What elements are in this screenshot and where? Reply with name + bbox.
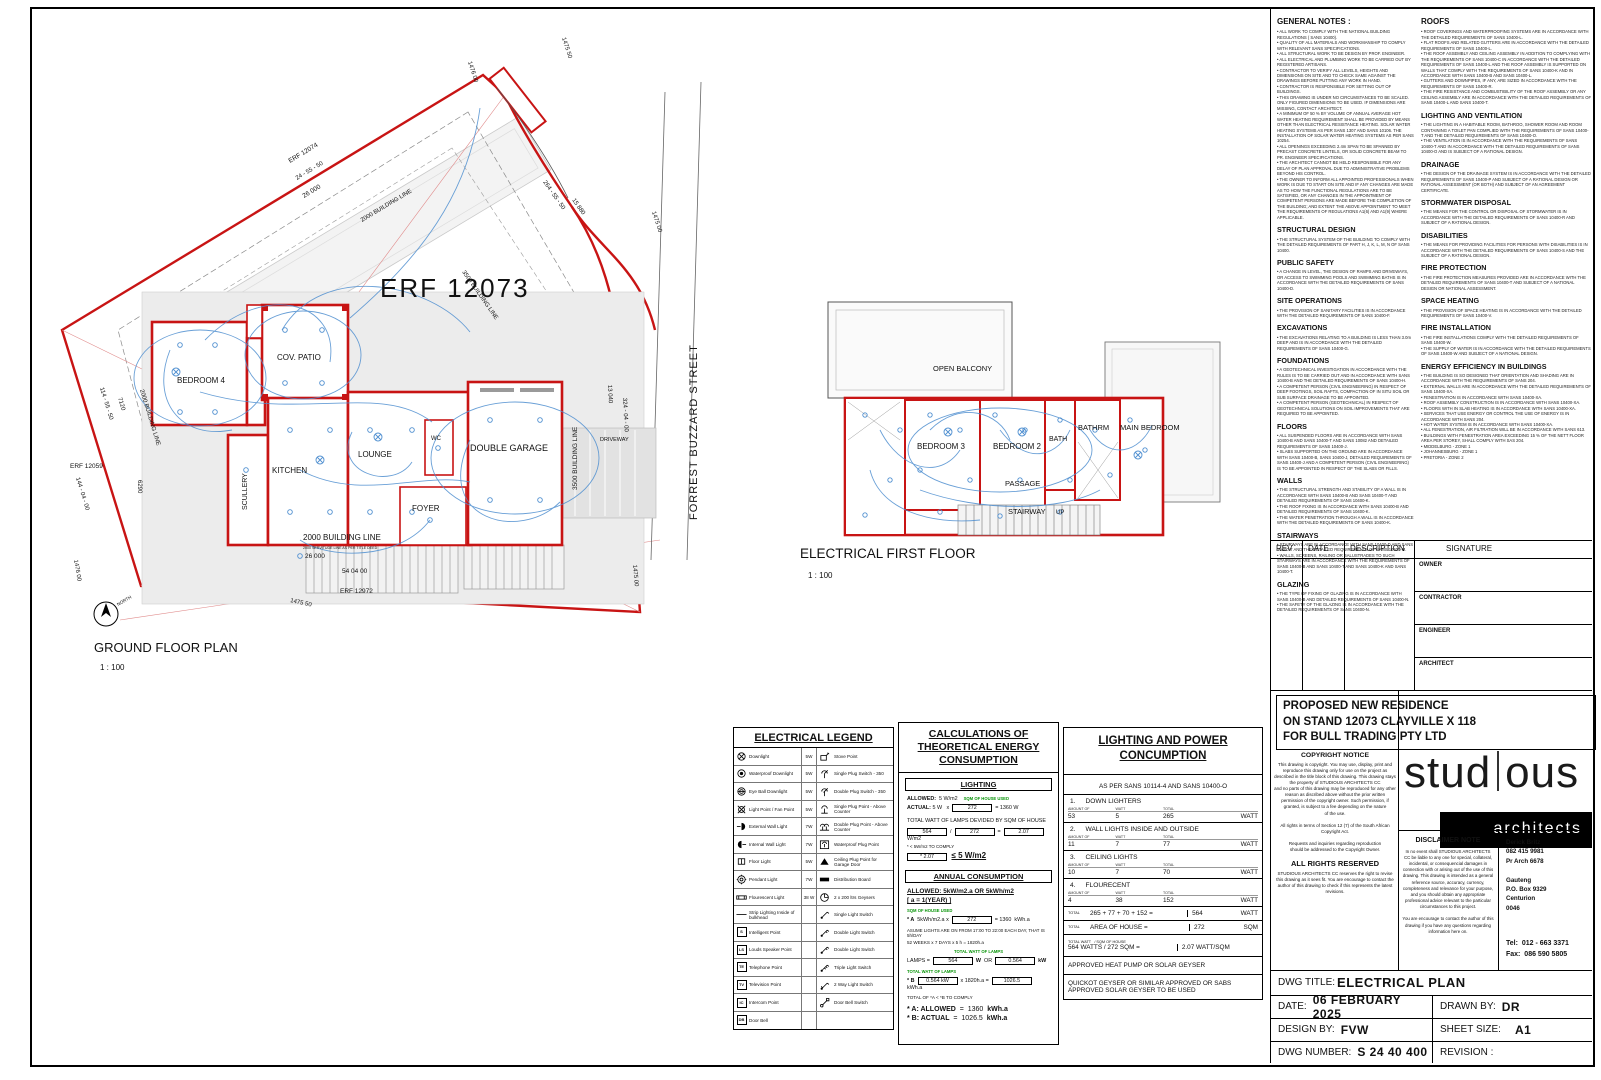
note-body: • THE MEANS FOR PROVIDING FACILITIES FOR… — [1421, 242, 1591, 258]
all-rights-reserved-title: ALL RIGHTS RESERVED — [1274, 859, 1396, 868]
general-notes-col2: ROOFS • ROOF COVERINGS AND WATERPROOFING… — [1421, 12, 1591, 460]
waterproof-plug-point-icon — [817, 839, 832, 850]
single-light-switch-icon — [817, 909, 832, 920]
svg-text:7120: 7120 — [116, 397, 126, 412]
ceiling-plug-point-icon — [817, 856, 832, 867]
svg-text:6290: 6290 — [136, 480, 142, 494]
room-label: BEDROOM 4 — [177, 376, 226, 385]
annual-sqm-box: 272 — [952, 916, 992, 924]
room-label: BEDROOM 3 — [917, 442, 966, 451]
svg-text:2000 BUILDING LINE: 2000 BUILDING LINE — [303, 533, 381, 542]
pendant-light-icon — [734, 874, 749, 885]
description-column-header: DESCRIPTION — [1350, 544, 1405, 553]
note-body: • THE STRUCTURAL SYSTEM OF THE BUILDING … — [1277, 237, 1414, 253]
note-heading: ENERGY EFFICIENCY IN BUILDINGS — [1421, 362, 1591, 371]
legend-row: TV Television Point 2 Way Light Switch — [734, 977, 893, 995]
legend-row: Waterproof Downlight 5W Single Plug Swit… — [734, 766, 893, 784]
plan-title: ELECTRICAL FIRST FLOOR — [800, 546, 976, 561]
telephone-point-icon: TE — [734, 962, 749, 972]
double-light-switch-icon — [817, 944, 832, 955]
project-line1: PROPOSED NEW RESIDENCE — [1283, 699, 1589, 715]
room-label: PASSAGE — [1005, 479, 1040, 488]
balcony-outline — [828, 302, 1012, 398]
house-area-row: TOTAL AREA OF HOUSE = 272 SQM — [1064, 921, 1262, 935]
disclaimer-body: In no event shall STUDIOUS ARCHITECTS CC… — [1402, 849, 1494, 911]
signature-column-header: SIGNATURE — [1446, 544, 1492, 553]
note-heading: WALLS — [1277, 476, 1414, 485]
date-value: 06 FEBRUARY 2025 — [1313, 993, 1432, 1021]
double-plug-switch-icon — [817, 786, 832, 797]
house-sqm-box: 272 — [955, 828, 995, 836]
legend-row: Internal Wall Light 7W Waterproof Plug P… — [734, 836, 893, 854]
plan-title: GROUND FLOOR PLAN — [94, 640, 238, 655]
triple-light-switch-icon — [817, 962, 832, 973]
legend-row: Downlight 5W Stove Point — [734, 748, 893, 766]
watt-per-sqm-row: TOTAL WATT / SQM OF HOUSE 564 WATTS / 27… — [1064, 935, 1262, 957]
signature-row-owner: OWNER — [1419, 562, 1442, 568]
ground-floor-plan: NORTH BEDROOM 4 COV. PATIO KITCHEN SCULL… — [35, 25, 735, 685]
room-label: SCULLERY — [242, 473, 249, 510]
a-allowed-value: 1360 — [968, 1006, 984, 1013]
legend-row: Strip Lighting Inside of bulkhead Single… — [734, 906, 893, 924]
note-heading: FOUNDATIONS — [1277, 356, 1414, 365]
contact-province: Gauteng — [1506, 876, 1590, 885]
copyright-notice: COPYRIGHT NOTICE This drawing is copyrig… — [1274, 752, 1396, 895]
power-title: LIGHTING AND POWER CONCUMPTION — [1064, 728, 1262, 775]
svg-text:54 04 00: 54 04 00 — [342, 568, 368, 575]
power-item: 2.WALL LIGHTS INSIDE AND OUTSIDE AMOUNT … — [1064, 823, 1262, 851]
copyright-rights: All rights in terms of Section 12 (7) of… — [1274, 823, 1396, 835]
legend-row: Flourescent Light 38 W 2 x 200 ltrs Geys… — [734, 889, 893, 907]
note-body: • THE BUILDING IS SO DESIGNED THAT ORIEN… — [1421, 373, 1591, 460]
sheet-size-row: SHEET SIZE:A1 — [1432, 1018, 1592, 1041]
project-title-box: PROPOSED NEW RESIDENCE ON STAND 12073 CL… — [1276, 695, 1596, 750]
note-body: • THE STRUCTURAL STRENGTH AND STABILITY … — [1277, 487, 1414, 525]
heat-pump-note: APPROVED HEAT PUMP OR SOLAR GEYSER — [1064, 957, 1262, 975]
distribution-board-icon — [817, 874, 832, 885]
contact-phone: 082 415 9981 — [1506, 847, 1590, 856]
rev-column-header: REV — [1276, 544, 1292, 553]
project-line2: ON STAND 12073 CLAYVILLE X 118 — [1283, 715, 1589, 731]
intercom-point-icon: IC — [734, 998, 749, 1008]
door-bell-switch-icon — [817, 997, 832, 1008]
calc-title: CALCULATIONS OF THEORETICAL ENERGY CONSU… — [899, 723, 1058, 773]
lamps-w-box: 564 — [933, 957, 973, 965]
svg-text:2000 SERVITUDE LINE AS PER TIT: 2000 SERVITUDE LINE AS PER TITLE DEED — [303, 546, 378, 550]
television-point-icon: TV — [734, 980, 749, 990]
legend-row: DB Door Bell — [734, 1012, 893, 1029]
logo-text-ous: ous — [1505, 748, 1579, 797]
disclaimer-note: DISCLAIMER NOTE In no event shall STUDIO… — [1402, 836, 1494, 935]
room-label: BATH — [1049, 436, 1067, 443]
room-label: UP — [1056, 510, 1064, 516]
design-by-value: FVW — [1341, 1023, 1369, 1037]
power-subtitle: AS PER SANS 10114-4 AND SANS 10400-O — [1064, 775, 1262, 795]
single-plug-point-icon — [817, 804, 832, 815]
internal-wall-light-icon — [734, 839, 749, 850]
room-label: STAIRWAY — [1008, 507, 1046, 516]
dwg-number-row: DWG NUMBER:S 24 40 400 — [1270, 1041, 1432, 1063]
fluorescent-light-icon — [734, 892, 749, 903]
waterproof-downlight-icon — [734, 768, 749, 779]
note-heading: DISABILITIES — [1421, 231, 1591, 240]
contact-registration: Pr Arch 6678 — [1506, 857, 1590, 866]
energy-calculations: CALCULATIONS OF THEORETICAL ENERGY CONSU… — [898, 722, 1059, 1045]
wpm2-box: 2.07 — [1004, 828, 1044, 836]
room-label: FOYER — [412, 504, 440, 513]
contact-tel: 012 - 663 3371 — [1522, 940, 1569, 947]
annual-section-header: ANNUAL CONSUMPTION — [905, 870, 1052, 883]
note-body: • THE LIGHTING IN A HABITABLE ROOM, BATH… — [1421, 122, 1591, 155]
note-body: • A CHANGE IN LEVEL, THE DESIGN OF RAMPS… — [1277, 269, 1414, 291]
note-heading: FLOORS — [1277, 422, 1414, 431]
general-notes-col1: GENERAL NOTES : • ALL WORK TO COMPLY WIT… — [1277, 12, 1414, 613]
signature-row-architect: ARCHITECT — [1419, 661, 1454, 667]
legend-row: IC Intercom Point Door Bell Switch — [734, 994, 893, 1012]
north-arrow-icon: NORTH — [94, 595, 132, 626]
date-column-header: DATE — [1308, 544, 1329, 553]
room-label: DRIVEWAY — [600, 437, 629, 443]
svg-text:ERF 12972: ERF 12972 — [340, 588, 373, 595]
first-floor-plan: OPEN BALCONY BEDROOM 3 BEDROOM 2 BATH BA… — [795, 295, 1265, 595]
legend-row: TE Telephone Point Triple Light Switch — [734, 959, 893, 977]
sheet-size-value: A1 — [1515, 1023, 1531, 1037]
door-bell-icon: DB — [734, 1015, 749, 1025]
note-body: • ALL WORK TO COMPLY WITH THE NATIONAL B… — [1277, 29, 1414, 220]
copyright-body: This drawing is copyright. You may use, … — [1274, 762, 1396, 817]
total-watt-box: 564 — [907, 828, 947, 836]
legend-row: Light Point / Fan Point 5W Single Plug P… — [734, 801, 893, 819]
legend-title: ELECTRICAL LEGEND — [734, 728, 893, 748]
svg-text:13 040: 13 040 — [606, 385, 613, 404]
note-body: • A GEOTECHNICAL INVESTIGATION IN ACCORD… — [1277, 367, 1414, 416]
room-label: COV. PATIO — [277, 353, 321, 362]
room-label: BEDROOM 2 — [993, 442, 1042, 451]
power-total-row: TOTAL 265 + 77 + 70 + 152 = 564 WATT — [1064, 907, 1262, 921]
note-body: • THE TYPE OF FIXING OF GLAZING IS IN AC… — [1277, 591, 1414, 613]
contact-city: Centurion — [1506, 894, 1590, 903]
legend-row: LS Louds Speaker Point Double Light Swit… — [734, 942, 893, 960]
room-label: OPEN BALCONY — [933, 364, 992, 373]
power-item: 4.FLOURECENT AMOUNT OFWATTTOTAL 438152WA… — [1064, 879, 1262, 907]
svg-text:1476 00: 1476 00 — [72, 559, 82, 582]
front-steps — [306, 545, 458, 593]
lighting-power-table: LIGHTING AND POWER CONCUMPTION AS PER SA… — [1063, 727, 1263, 1000]
svg-text:26 000: 26 000 — [301, 183, 322, 199]
logo-text-stud: stud — [1404, 748, 1491, 797]
double-light-switch-icon — [817, 927, 832, 938]
all-rights-reserved-body: STUDIOUS ARCHITECTS CC reserves the righ… — [1274, 871, 1396, 895]
light-fan-point-icon — [734, 804, 749, 815]
geysers-icon — [817, 892, 832, 903]
two-way-light-switch-icon — [817, 980, 832, 991]
eyeball-downlight-icon — [734, 786, 749, 797]
geyser-note: QUICKOT GEYSER OR SIMILAR APPROVED OR SA… — [1064, 975, 1262, 999]
floor-light-icon — [734, 856, 749, 867]
dwg-title-row: DWG TITLE:ELECTRICAL PLAN — [1270, 970, 1592, 995]
signature-row-engineer: ENGINEER — [1419, 628, 1450, 634]
note-body: • ROOF COVERINGS AND WATERPROOFING SYSTE… — [1421, 29, 1591, 105]
comply-value-box: * 2.07 — [907, 853, 947, 861]
note-body: • THE FIRE INSTALLATIONS COMPLY WITH THE… — [1421, 335, 1591, 357]
note-heading: ROOFS — [1421, 17, 1591, 27]
house-area-value: 272 — [1189, 924, 1243, 931]
sqm-value-box: 272 — [952, 804, 992, 812]
copyright-title: COPYRIGHT NOTICE — [1274, 752, 1396, 759]
svg-text:ERF 12074: ERF 12074 — [287, 142, 319, 165]
note-heading: EXCAVATIONS — [1277, 323, 1414, 332]
b-total-box: 1026.5 — [992, 977, 1032, 985]
contact-postal: 0046 — [1506, 904, 1590, 913]
note-body: • THE PROVISION OF SANITARY FACILITIES I… — [1277, 308, 1414, 319]
note-heading: GENERAL NOTES : — [1277, 17, 1414, 27]
legend-row: S Intelligent Point Double Light Switch — [734, 924, 893, 942]
project-line3: FOR BULL TRADING PTY LTD — [1283, 730, 1589, 746]
b-actual-value: 1026.5 — [961, 1015, 982, 1022]
room-label: BATHRM — [1078, 423, 1109, 432]
contact-telfax: Tel: 012 - 663 3371 Fax: 086 590 5805 — [1506, 938, 1569, 960]
power-total-value: 564 — [1187, 910, 1241, 917]
downlight-icon — [734, 751, 749, 762]
note-heading: DRAINAGE — [1421, 160, 1591, 169]
svg-text:3500 BUILDING LINE: 3500 BUILDING LINE — [572, 426, 579, 490]
note-heading: SITE OPERATIONS — [1277, 296, 1414, 305]
strip-lighting-icon — [734, 909, 749, 920]
svg-text:1475 50: 1475 50 — [560, 37, 573, 60]
room-label: DOUBLE GARAGE — [470, 443, 548, 453]
svg-text:ERF 12059: ERF 12059 — [70, 463, 103, 470]
legend-row: External Wall Light 7W Double Plug Point… — [734, 818, 893, 836]
disclaimer-footer: You are encourage to contact the author … — [1402, 916, 1494, 934]
note-heading: GLAZING — [1277, 580, 1414, 589]
watt-per-sqm-value: 2.07 WATT/SQM — [1177, 944, 1258, 951]
note-body: • THE MEANS FOR THE CONTROL OR DISPOSAL … — [1421, 209, 1591, 225]
disclaimer-title: DISCLAIMER NOTE — [1402, 836, 1494, 846]
room-label: MAIN BEDROOM — [1120, 423, 1180, 432]
svg-text:114 - 55 - 50: 114 - 55 - 50 — [98, 387, 114, 421]
legend-row: Floor Light 5W Ceiling Plug Point for Ga… — [734, 854, 893, 872]
power-item: 3.CEILING LIGHTS AMOUNT OFWATTTOTAL 1077… — [1064, 851, 1262, 879]
note-body: • THE DESIGN OF THE DRAINAGE SYSTEM IS I… — [1421, 171, 1591, 193]
loudspeaker-point-icon: LS — [734, 945, 749, 955]
note-heading: FIRE PROTECTION — [1421, 263, 1591, 272]
electrical-legend: ELECTRICAL LEGEND Downlight 5W Stove Poi… — [733, 727, 894, 1030]
drawn-by-value: DR — [1502, 1000, 1520, 1014]
svg-text:144 - 04 - 00: 144 - 04 - 00 — [74, 477, 90, 512]
contact-name: Derick Britz — [1506, 838, 1590, 847]
note-heading: STORMWATER DISPOSAL — [1421, 198, 1591, 207]
svg-text:1476 00: 1476 00 — [466, 61, 479, 84]
dwg-number-value: S 24 40 400 — [1357, 1045, 1427, 1059]
note-heading: FIRE INSTALLATION — [1421, 323, 1591, 332]
b-kw-box: 0.564 kW — [918, 977, 958, 985]
note-heading: PUBLIC SAFETY — [1277, 258, 1414, 267]
legend-row: Eye Ball Downlight 5W Double Plug Switch… — [734, 783, 893, 801]
svg-text:264 - 55 - 50: 264 - 55 - 50 — [541, 180, 566, 212]
contact-fax: 086 590 5805 — [1524, 951, 1567, 958]
external-wall-light-icon — [734, 821, 749, 832]
revision-row: REVISION : — [1432, 1041, 1592, 1063]
double-plug-point-icon — [817, 821, 832, 832]
drawn-by-row: DRAWN BY:DR — [1432, 995, 1592, 1018]
note-body: • THE PROVISION OF SPACE HEATING IS IN A… — [1421, 308, 1591, 319]
power-item: 1.DOWN LIGHTERS AMOUNT OFWATTTOTAL 53526… — [1064, 795, 1262, 823]
contact-pobox: P.O. Box 9329 — [1506, 885, 1590, 894]
room-label: LOUNGE — [358, 450, 392, 459]
note-heading: LIGHTING AND VENTILATION — [1421, 111, 1591, 120]
room-label: KITCHEN — [272, 466, 307, 475]
single-plug-switch-icon — [817, 768, 832, 779]
design-by-row: DESIGN BY:FVW — [1270, 1018, 1432, 1041]
note-heading: STAIRWAYS — [1277, 531, 1414, 540]
logo-divider — [1497, 751, 1499, 791]
lighting-section-header: LIGHTING — [905, 778, 1052, 791]
stove-point-icon — [817, 751, 832, 762]
svg-text:NORTH: NORTH — [116, 595, 132, 607]
plan-scale: 1 : 100 — [808, 571, 833, 580]
studious-architects-logo: studous architects — [1404, 748, 1592, 828]
room-label: WC — [431, 436, 442, 442]
plan-scale: 1 : 100 — [100, 663, 125, 672]
intelligent-point-icon: S — [734, 927, 749, 937]
svg-text:26 000: 26 000 — [305, 553, 325, 560]
signature-row-contractor: CONTRACTOR — [1419, 595, 1462, 601]
copyright-requests: Requests and inquiries regarding reprodu… — [1274, 841, 1396, 853]
note-body: • THE FIRE PROTECTION MEASURES PROVIDED … — [1421, 275, 1591, 291]
date-row: DATE:06 FEBRUARY 2025 — [1270, 995, 1432, 1018]
note-heading: SPACE HEATING — [1421, 296, 1591, 305]
legend-row: Pendant Light 7W Distribution Board — [734, 871, 893, 889]
note-heading: STRUCTURAL DESIGN — [1277, 225, 1414, 234]
drawing-sheet: NORTH BEDROOM 4 COV. PATIO KITCHEN SCULL… — [0, 0, 1601, 1080]
erf-label: ERF 12073 — [380, 273, 530, 303]
note-body: • ALL SUSPENDED FLOORS ARE IN ACCORDANCE… — [1277, 433, 1414, 471]
architect-contact: Derick Britz 082 415 9981 Pr Arch 6678 G… — [1506, 838, 1590, 913]
street-name: FORREST BUZZARD STREET — [688, 344, 700, 520]
lamps-kw-box: 0.564 — [995, 957, 1035, 965]
dwg-title-value: ELECTRICAL PLAN — [1337, 975, 1466, 990]
note-body: • THE EXCAVATIONS RELATING TO A BUILDING… — [1277, 335, 1414, 351]
